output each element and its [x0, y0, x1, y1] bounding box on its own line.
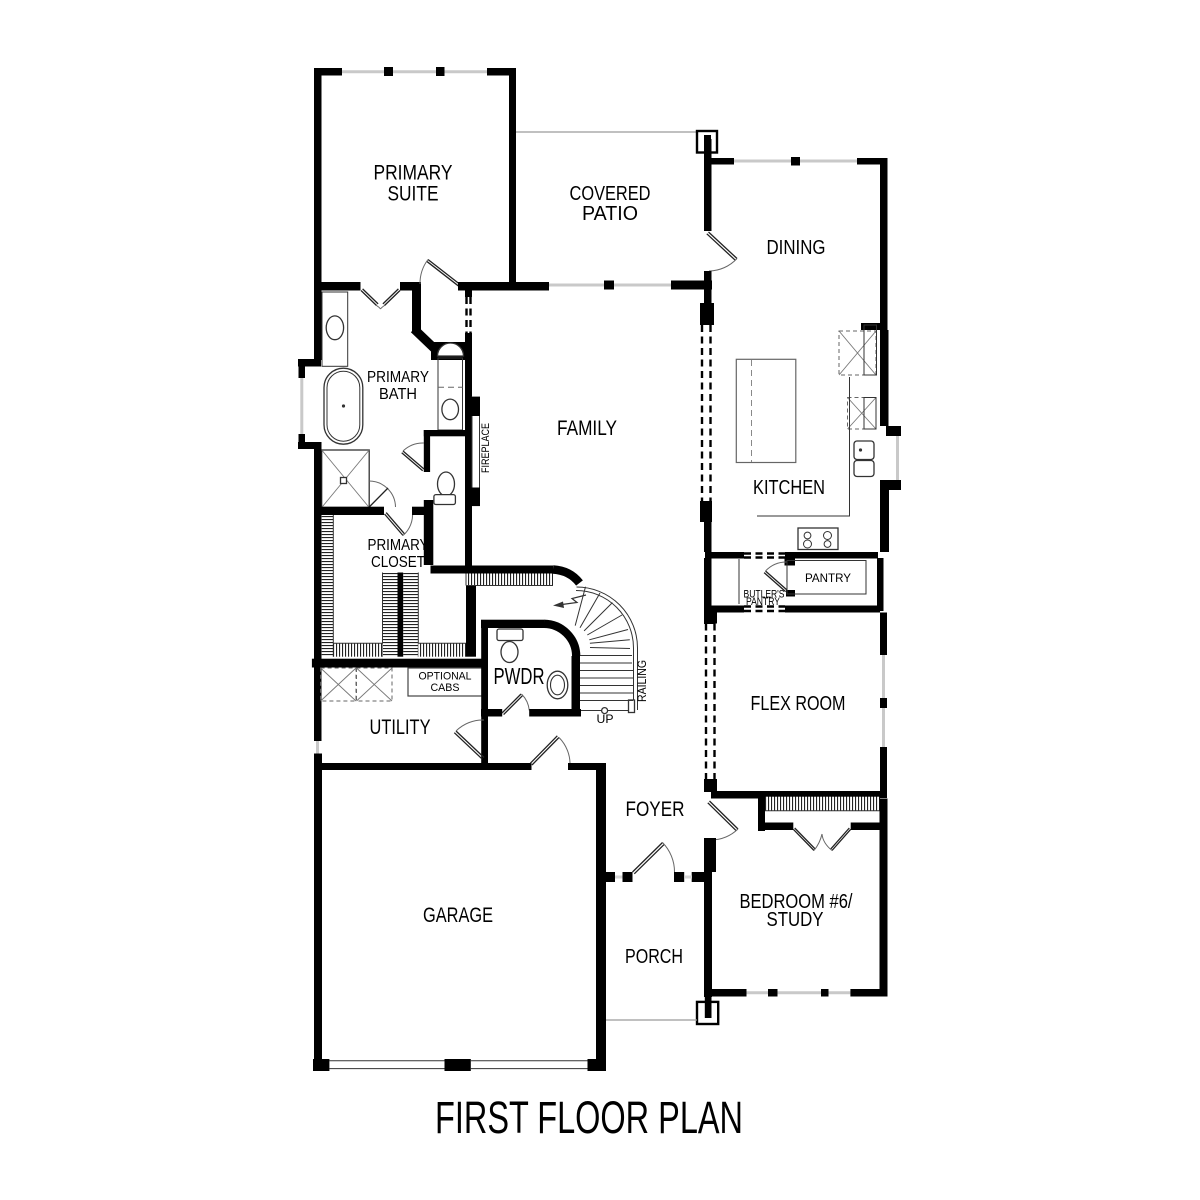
svg-text:PRIMARY: PRIMARY: [374, 162, 453, 185]
svg-text:FAMILY: FAMILY: [557, 417, 617, 440]
svg-text:PRIMARY: PRIMARY: [367, 369, 429, 386]
svg-text:PATIO: PATIO: [582, 203, 638, 225]
svg-text:FIREPLACE: FIREPLACE: [480, 423, 492, 473]
svg-text:PWDR: PWDR: [494, 663, 545, 689]
svg-text:BATH: BATH: [379, 386, 417, 403]
svg-text:FLEX ROOM: FLEX ROOM: [751, 693, 846, 715]
svg-text:COVERED: COVERED: [570, 183, 651, 205]
svg-text:SUITE: SUITE: [388, 183, 439, 206]
svg-text:CLOSET: CLOSET: [371, 554, 425, 571]
svg-text:STUDY: STUDY: [767, 909, 824, 931]
svg-text:PANTRY: PANTRY: [746, 596, 781, 608]
svg-text:PANTRY: PANTRY: [805, 571, 851, 585]
svg-text:KITCHEN: KITCHEN: [753, 477, 825, 499]
svg-text:UP: UP: [597, 714, 614, 726]
svg-text:CABS: CABS: [431, 682, 460, 694]
svg-text:UTILITY: UTILITY: [370, 716, 431, 739]
svg-text:PRIMARY: PRIMARY: [368, 537, 429, 554]
svg-text:FIRST FLOOR PLAN: FIRST FLOOR PLAN: [435, 1092, 743, 1143]
svg-text:FOYER: FOYER: [626, 798, 685, 821]
svg-text:RAILING: RAILING: [635, 660, 649, 702]
svg-text:OPTIONAL: OPTIONAL: [419, 671, 472, 683]
svg-text:GARAGE: GARAGE: [423, 904, 493, 927]
svg-text:DINING: DINING: [767, 237, 826, 259]
svg-text:PORCH: PORCH: [625, 946, 683, 968]
